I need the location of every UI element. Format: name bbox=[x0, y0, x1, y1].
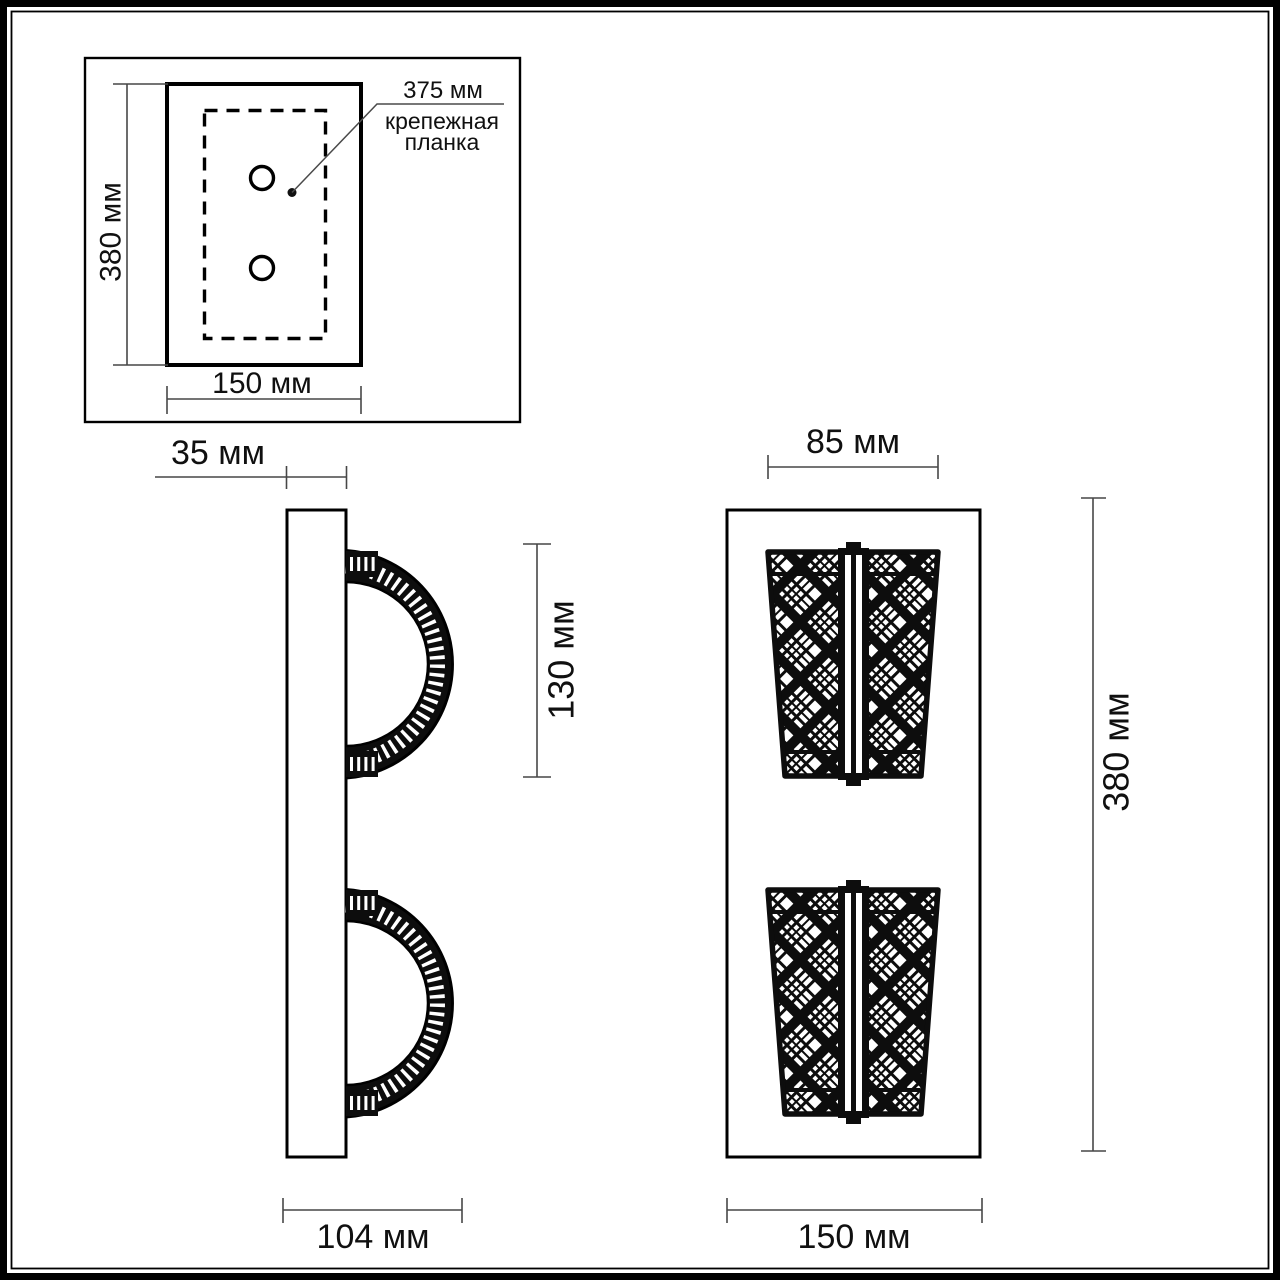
mounting-detail-inset: 375 мм крепежная планка 380 мм 150 мм bbox=[85, 58, 520, 422]
width-dimension-label: 150 мм bbox=[798, 1218, 911, 1256]
shade-center-bar-middle bbox=[851, 548, 856, 780]
height-dimension-label: 380 мм bbox=[1096, 692, 1137, 812]
depth-dimension-label: 35 мм bbox=[171, 434, 265, 472]
shade-height-dimension-label: 130 мм bbox=[541, 600, 582, 720]
crystal-shade-front-lower bbox=[758, 880, 952, 1124]
inset-width-dimension-label: 150 мм bbox=[212, 367, 312, 400]
shade-center-band-bottom-cap bbox=[838, 773, 869, 780]
wall-lamp-dimension-drawing: 375 мм крепежная планка 380 мм 150 мм 35… bbox=[0, 0, 1280, 1280]
technical-drawing-canvas: 375 мм крепежная планка 380 мм 150 мм 35… bbox=[0, 0, 1280, 1280]
shade-top-nub bbox=[846, 542, 861, 550]
backplate-side-profile bbox=[287, 510, 346, 1157]
shade-width-dimension-label: 85 мм bbox=[806, 423, 900, 461]
inset-height-dimension-label: 380 мм bbox=[95, 182, 128, 282]
shade-center-bar-right bbox=[862, 548, 869, 780]
mounting-hole-top bbox=[251, 167, 274, 190]
bracket-caption-line2: планка bbox=[405, 129, 480, 155]
mounting-hole-bottom bbox=[251, 257, 274, 280]
bracket-length-label: 375 мм bbox=[403, 77, 483, 104]
mounting-plate-outline bbox=[167, 84, 361, 365]
shade-bottom-nub bbox=[846, 779, 861, 786]
crystal-shade-front-upper bbox=[758, 542, 952, 786]
shade-center-bar-left bbox=[838, 548, 845, 780]
total-depth-dimension-label: 104 мм bbox=[317, 1218, 430, 1256]
